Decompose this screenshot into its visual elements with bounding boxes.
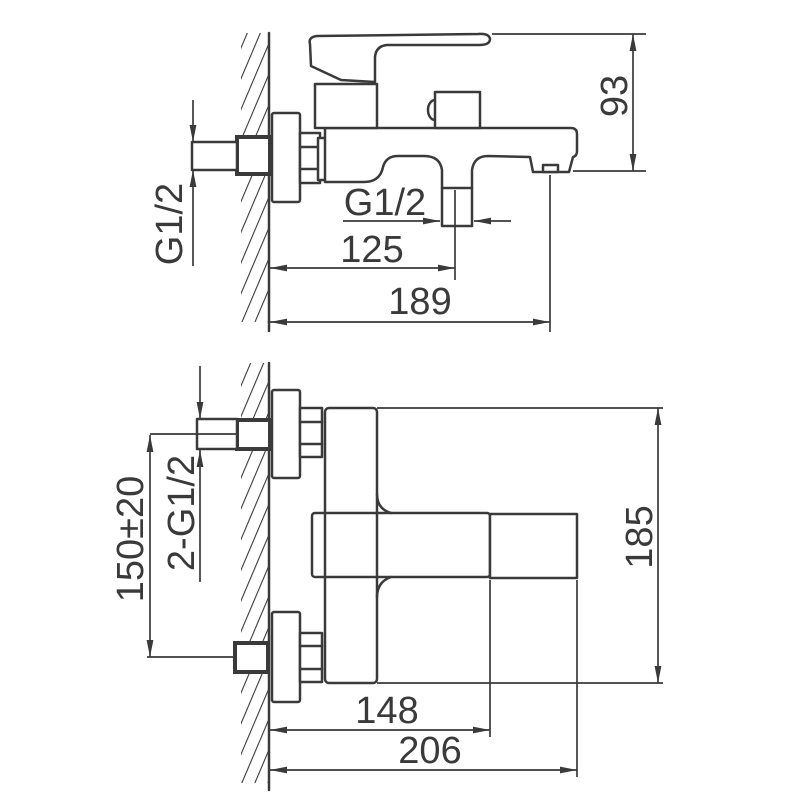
arrowhead bbox=[655, 408, 662, 425]
dim-inlet-thread: G1/2 bbox=[149, 100, 196, 266]
dim-text-93: 93 bbox=[594, 75, 636, 117]
arrowhead bbox=[474, 218, 491, 225]
arrowhead bbox=[270, 727, 287, 734]
arrowhead bbox=[630, 34, 637, 51]
handle-end-plan bbox=[490, 514, 577, 578]
plan-view: 150±20 2-G1/2 185 148 bbox=[110, 363, 663, 790]
cartridge-housing bbox=[315, 84, 377, 128]
dim-inlet-threads: 2-G1/2 bbox=[161, 366, 203, 582]
drawing-canvas: 93 G1/2 G1/2 125 bbox=[0, 0, 800, 800]
through-wall-pipe bbox=[237, 137, 270, 174]
hex-nut bbox=[300, 633, 322, 682]
lever-handle bbox=[310, 34, 490, 82]
pipe-stub bbox=[192, 142, 237, 170]
through-wall-pipe bbox=[235, 643, 268, 672]
wall-hatch-area bbox=[241, 33, 269, 322]
dim-text-g12-outlet: G1/2 bbox=[344, 182, 426, 224]
arrowhead bbox=[147, 435, 154, 452]
faucet-body-plan bbox=[312, 408, 577, 683]
arrowhead bbox=[630, 154, 637, 171]
dim-text-206: 206 bbox=[398, 730, 461, 772]
technical-drawing: 93 G1/2 G1/2 125 bbox=[0, 0, 800, 800]
dim-outlet-thread: G1/2 bbox=[343, 182, 511, 224]
through-wall-pipe bbox=[237, 420, 270, 449]
diverter-knob bbox=[435, 92, 480, 128]
aerator bbox=[543, 165, 558, 172]
arrowhead bbox=[147, 640, 154, 657]
dim-text-125: 125 bbox=[340, 229, 403, 271]
arrowhead bbox=[270, 767, 287, 774]
arrowhead bbox=[197, 402, 204, 419]
wall-section bbox=[241, 33, 269, 331]
dim-text-189: 189 bbox=[388, 281, 451, 323]
dim-text-2g12: 2-G1/2 bbox=[161, 455, 203, 571]
arrowhead bbox=[190, 125, 197, 142]
dim-text-150: 150±20 bbox=[110, 476, 152, 603]
fillet bbox=[377, 577, 391, 597]
arrowhead bbox=[438, 265, 455, 272]
escutcheon bbox=[272, 612, 300, 702]
boss-fill bbox=[325, 408, 377, 683]
arrowhead bbox=[560, 767, 577, 774]
dim-text-185: 185 bbox=[619, 505, 661, 568]
dim-text-148: 148 bbox=[355, 690, 418, 732]
escutcheon bbox=[272, 390, 300, 478]
dim-text-g12: G1/2 bbox=[149, 183, 191, 265]
escutcheon bbox=[272, 113, 300, 202]
arrowhead bbox=[533, 319, 550, 326]
fillet bbox=[377, 494, 391, 513]
arrowhead bbox=[270, 265, 287, 272]
hex-nut bbox=[300, 408, 322, 457]
arrowhead bbox=[655, 666, 662, 683]
arrowhead bbox=[270, 319, 287, 326]
side-view: 93 G1/2 G1/2 125 bbox=[149, 33, 646, 332]
arrowhead bbox=[473, 727, 490, 734]
